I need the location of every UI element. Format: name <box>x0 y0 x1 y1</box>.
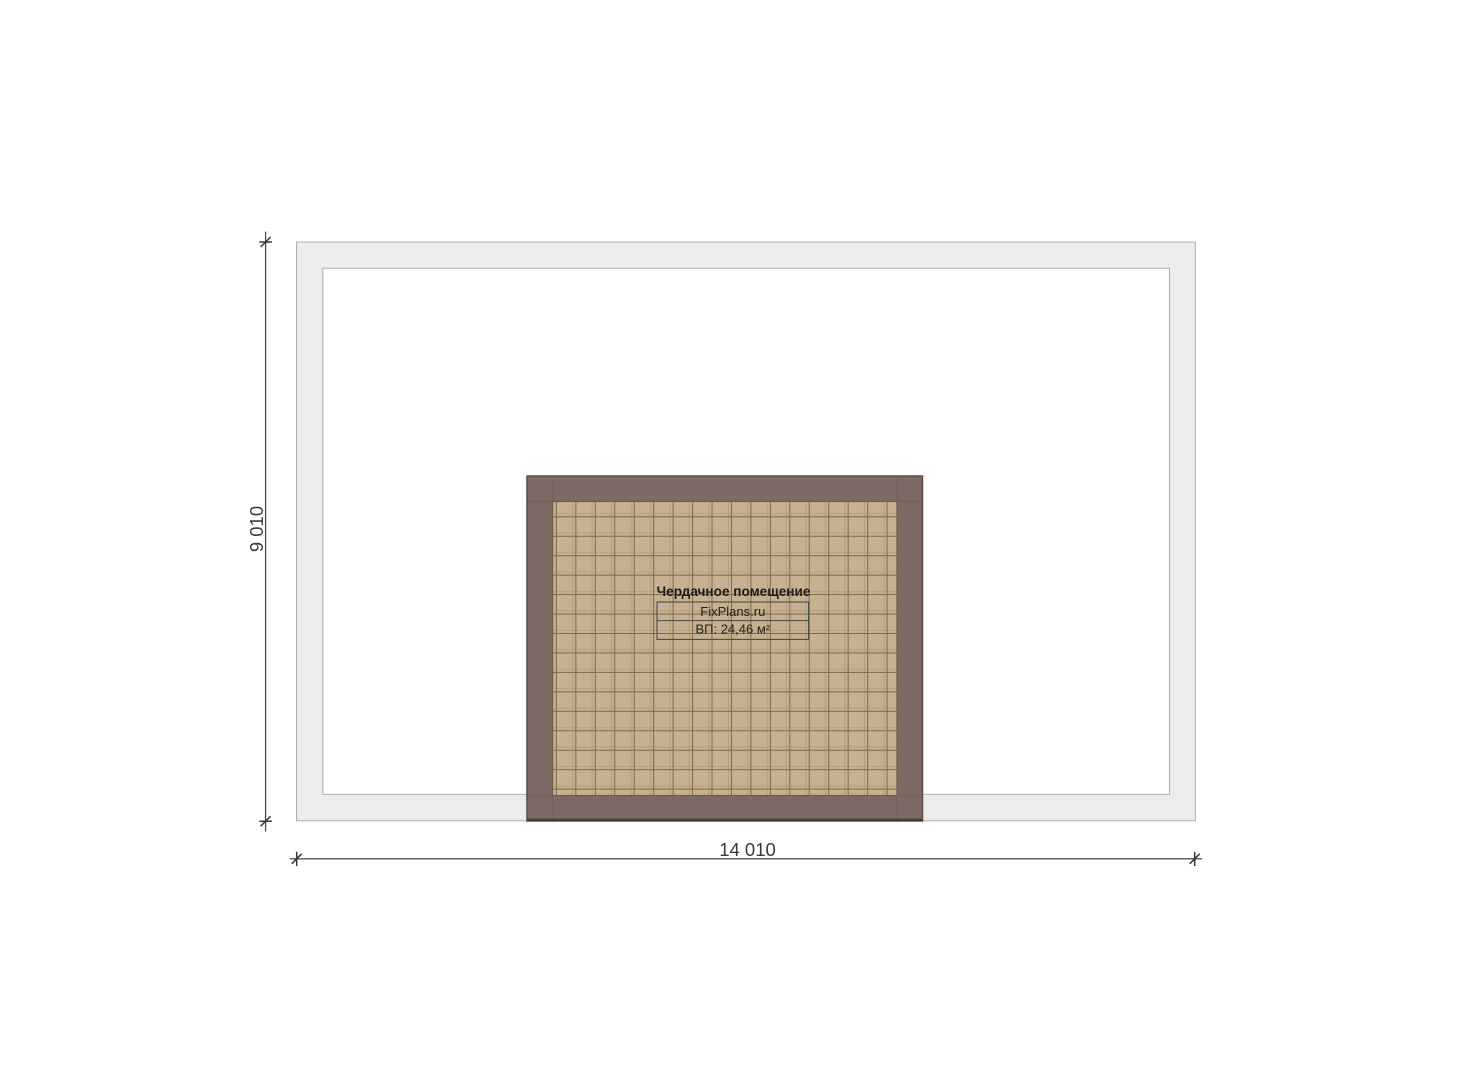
svg-text:9 010: 9 010 <box>246 506 267 552</box>
svg-text:ВП: 24,46 м²: ВП: 24,46 м² <box>695 622 770 637</box>
svg-text:14 010: 14 010 <box>719 839 776 860</box>
svg-text:Чердачное помещение: Чердачное помещение <box>657 584 811 599</box>
svg-text:FixPlans.ru: FixPlans.ru <box>700 604 765 619</box>
